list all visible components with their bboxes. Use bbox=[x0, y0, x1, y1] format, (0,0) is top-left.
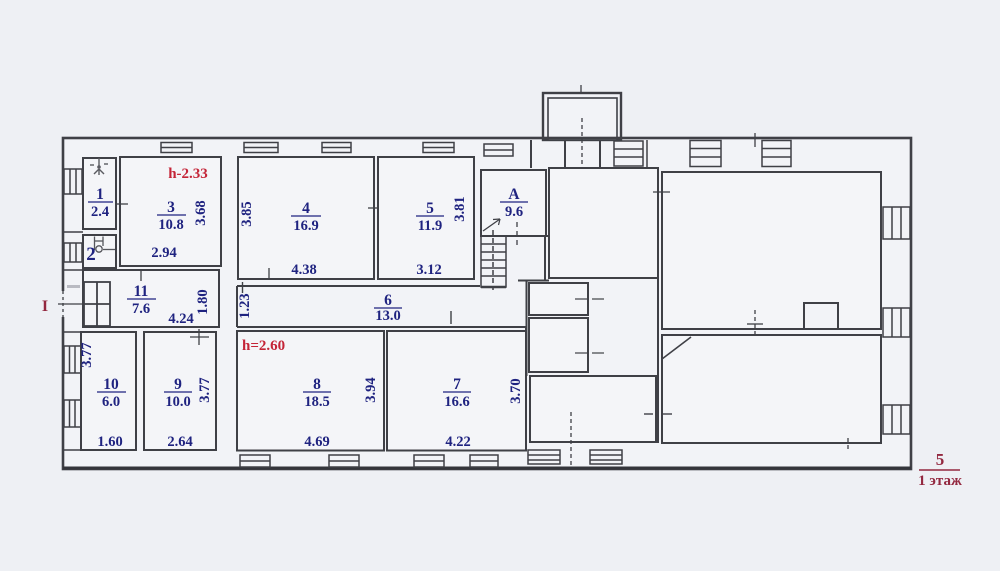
svg-text:16.9: 16.9 bbox=[293, 218, 318, 234]
svg-text:4.38: 4.38 bbox=[291, 262, 316, 278]
svg-text:9.6: 9.6 bbox=[505, 204, 523, 220]
svg-text:1.80: 1.80 bbox=[195, 289, 211, 314]
svg-text:3.77: 3.77 bbox=[197, 377, 213, 402]
svg-text:h-2.33: h-2.33 bbox=[168, 166, 208, 182]
svg-text:16.6: 16.6 bbox=[444, 394, 469, 410]
svg-text:5: 5 bbox=[426, 200, 434, 217]
svg-text:3.81: 3.81 bbox=[452, 196, 468, 221]
svg-text:7.6: 7.6 bbox=[132, 301, 150, 317]
svg-text:2.94: 2.94 bbox=[151, 245, 176, 261]
svg-text:10.0: 10.0 bbox=[165, 394, 190, 410]
svg-text:4.69: 4.69 bbox=[304, 434, 329, 450]
svg-text:6: 6 bbox=[384, 292, 392, 309]
svg-text:7: 7 bbox=[453, 376, 461, 393]
svg-text:13.0: 13.0 bbox=[375, 308, 400, 324]
svg-text:I: I bbox=[42, 298, 48, 315]
svg-text:11: 11 bbox=[134, 283, 149, 300]
svg-text:8: 8 bbox=[313, 376, 321, 393]
svg-text:3.85: 3.85 bbox=[239, 201, 255, 226]
svg-text:10.8: 10.8 bbox=[158, 217, 183, 233]
svg-text:3.94: 3.94 bbox=[363, 377, 379, 402]
svg-text:3.70: 3.70 bbox=[508, 378, 524, 403]
svg-text:А: А bbox=[508, 186, 520, 203]
svg-text:1.23: 1.23 bbox=[237, 293, 253, 318]
svg-text:4.24: 4.24 bbox=[168, 311, 193, 327]
svg-text:1 этаж: 1 этаж bbox=[918, 473, 962, 489]
svg-text:4: 4 bbox=[302, 200, 310, 217]
svg-text:1.60: 1.60 bbox=[97, 434, 122, 450]
svg-text:4.22: 4.22 bbox=[445, 434, 470, 450]
svg-text:6.0: 6.0 bbox=[102, 394, 120, 410]
svg-text:5: 5 bbox=[936, 450, 945, 469]
svg-text:18.5: 18.5 bbox=[304, 394, 329, 410]
svg-text:1: 1 bbox=[96, 186, 104, 203]
svg-text:10: 10 bbox=[103, 376, 119, 393]
svg-text:9: 9 bbox=[174, 376, 182, 393]
svg-text:3.77: 3.77 bbox=[79, 342, 95, 367]
svg-text:2: 2 bbox=[86, 244, 96, 265]
svg-text:11.9: 11.9 bbox=[418, 218, 443, 234]
svg-text:3: 3 bbox=[167, 199, 175, 216]
svg-text:h=2.60: h=2.60 bbox=[242, 338, 285, 354]
svg-text:2.64: 2.64 bbox=[167, 434, 192, 450]
svg-text:2.4: 2.4 bbox=[91, 204, 109, 220]
svg-text:3.68: 3.68 bbox=[193, 200, 209, 225]
svg-text:3.12: 3.12 bbox=[416, 262, 441, 278]
